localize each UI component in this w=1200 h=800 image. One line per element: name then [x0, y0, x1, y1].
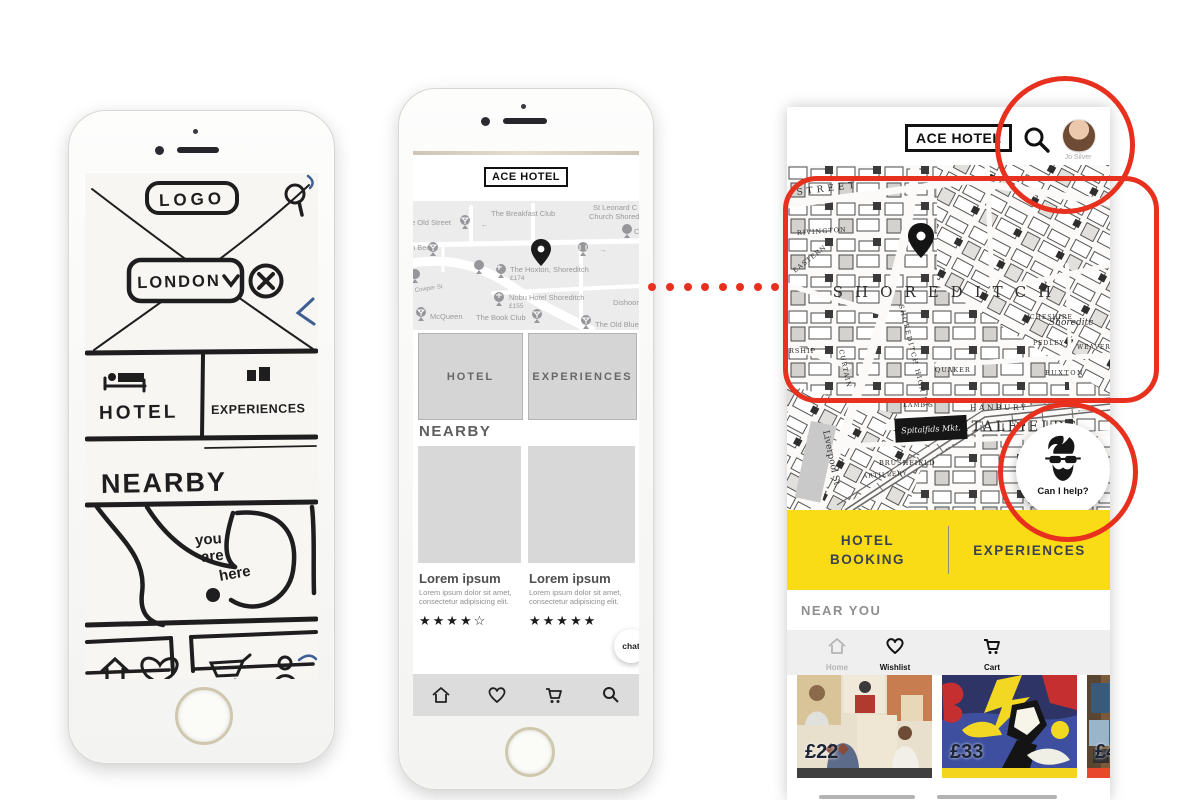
city-label: LONDON: [137, 272, 221, 292]
tab-hotel-line1: HOTEL: [841, 533, 894, 548]
divider: [87, 437, 316, 439]
nearby-heading: NEARBY: [101, 467, 228, 499]
wireframe-map[interactable]: e Old Street The Breakfast Club ← St Leo…: [413, 201, 639, 330]
card-title: Lorem ipsum: [529, 571, 611, 586]
wireframe-bottom-nav: [413, 674, 639, 716]
wireframe-header: ACE HOTEL: [413, 155, 639, 201]
proximity-sensor: [521, 104, 526, 109]
assistant-button-label: Can I help?: [1016, 486, 1110, 497]
hotel-tab[interactable]: HOTEL: [99, 373, 179, 424]
near-you-section: NEAR YOU: [787, 590, 1110, 630]
svg-text:The Breakfast Club: The Breakfast Club: [491, 209, 555, 218]
divider: [202, 355, 203, 438]
nav-item-wishlist[interactable]: Wishlist: [865, 635, 925, 672]
product-card[interactable]: £33: [942, 675, 1077, 778]
svg-text:BUXTON: BUXTON: [1045, 369, 1084, 377]
front-camera: [481, 117, 490, 126]
you-are-here-note: you are here: [195, 530, 252, 585]
divider: [87, 502, 316, 505]
svg-text:RSHIP: RSHIP: [789, 347, 816, 355]
hifi-header: ACE HOTEL Jo Silver: [787, 107, 1110, 166]
product-price: £4: [1095, 741, 1110, 764]
ace-hotel-logo: ACE HOTEL: [905, 124, 1012, 152]
nav-label: Cart: [962, 663, 1022, 672]
you-are-here-dot: [206, 588, 220, 602]
sketch-phone-device: LOGO LONDON: [68, 110, 335, 764]
svg-text:BRUSHFIELD: BRUSHFIELD: [879, 459, 936, 467]
svg-text:The Book Club: The Book Club: [476, 313, 526, 322]
nearby-heading: NEARBY: [419, 423, 491, 440]
hifi-mockup: ACE HOTEL Jo Silver: [787, 107, 1110, 800]
search-icon[interactable]: [1022, 125, 1052, 155]
nearby-card-image[interactable]: [528, 446, 635, 563]
booking-tabs: HOTEL BOOKING EXPERIENCES: [787, 510, 1110, 590]
clear-button[interactable]: [251, 266, 282, 297]
ace-hotel-logo: ACE HOTEL: [484, 167, 568, 187]
heart-icon[interactable]: [486, 684, 508, 706]
earpiece-speaker: [177, 147, 219, 153]
svg-text:e Old Street: e Old Street: [413, 218, 452, 227]
home-icon: [826, 635, 848, 657]
search-icon[interactable]: [286, 185, 304, 215]
tab-experiences-label: EXPERIENCES: [973, 541, 1086, 560]
svg-text:are: are: [200, 547, 224, 566]
nav-label: Home: [807, 663, 867, 672]
product-color-bar: [797, 768, 932, 778]
wireframe-screen: ACE HOTEL: [413, 151, 639, 716]
sketch-wireframe-drawing: LOGO LONDON: [85, 173, 318, 679]
card-description: Lorem ipsum dolor sit amet, consectetur …: [529, 588, 633, 606]
experiences-tab-label: EXPERIENCES: [211, 401, 306, 417]
earpiece-speaker: [503, 118, 547, 124]
svg-text:Nobu Hotel Shoreditch: Nobu Hotel Shoreditch: [509, 293, 584, 302]
nav-label: Wishlist: [865, 663, 925, 672]
assistant-button[interactable]: Can I help?: [1016, 423, 1110, 517]
market-label: Spitalfids Mkt.: [894, 415, 967, 443]
user-name: Jo Silver: [1048, 154, 1108, 161]
star-rating[interactable]: ★★★★☆: [419, 613, 487, 629]
profile-icon[interactable]: [275, 657, 295, 679]
svg-text:←: ←: [481, 220, 489, 229]
chat-button[interactable]: chat: [614, 629, 639, 663]
truncated-caption: [819, 795, 915, 799]
cart-icon: [980, 635, 1004, 657]
svg-text:you: you: [195, 530, 223, 549]
experiences-icon: [247, 367, 270, 381]
sketch-screen: LOGO LONDON: [85, 173, 318, 679]
svg-text:→: →: [599, 245, 607, 254]
search-icon[interactable]: [600, 684, 622, 706]
svg-text:Church Shoredit: Church Shoredit: [589, 212, 639, 221]
product-card[interactable]: £22: [797, 675, 932, 778]
proximity-sensor: [193, 129, 198, 134]
heart-icon: [884, 635, 906, 657]
bed-icon: [105, 373, 145, 391]
svg-text:St Leonard C o: St Leonard C o: [593, 203, 639, 212]
svg-text:LAMB S: LAMB S: [903, 402, 934, 409]
svg-text:£155: £155: [509, 303, 524, 310]
tab-hotel-line2: BOOKING: [830, 552, 905, 567]
nearby-card-image[interactable]: [418, 446, 521, 563]
divider: [87, 351, 316, 353]
svg-text:HANBURY: HANBURY: [970, 403, 1028, 412]
nav-item-cart[interactable]: Cart: [962, 635, 1022, 672]
wireframe-phone-device: ACE HOTEL: [398, 88, 654, 790]
hipster-face-icon: [1040, 435, 1086, 483]
home-button[interactable]: [175, 687, 233, 745]
hotel-tab-label: HOTEL: [99, 402, 179, 424]
logo-label: LOGO: [159, 189, 226, 210]
hotel-button-label: HOTEL: [447, 371, 494, 383]
experiences-tab[interactable]: EXPERIENCES: [211, 367, 306, 417]
svg-text:SHOREDITCH: SHOREDITCH: [833, 283, 1063, 301]
svg-text:Dishoom S: Dishoom S: [613, 298, 639, 307]
svg-text:Carg: Carg: [634, 227, 639, 236]
design-progression-canvas: LOGO LONDON: [0, 0, 1200, 800]
card-description: Lorem ipsum dolor sit amet, consectetur …: [419, 588, 521, 606]
svg-text:n Bee: n Bee: [413, 243, 431, 252]
truncated-caption: [937, 795, 1057, 799]
product-color-bar: [942, 768, 1077, 778]
experiences-button-label: EXPERIENCES: [532, 371, 632, 383]
svg-text:WEAVER: WEAVER: [1077, 344, 1110, 351]
product-color-bar: [1087, 768, 1110, 778]
tab-hotel-booking[interactable]: HOTEL BOOKING: [787, 510, 948, 590]
home-icon[interactable]: [430, 684, 452, 706]
tab-experiences[interactable]: EXPERIENCES: [949, 510, 1110, 590]
card-title: Lorem ipsum: [419, 571, 501, 586]
product-card[interactable]: £4: [1087, 675, 1110, 778]
svg-text:£174: £174: [510, 275, 525, 282]
svg-text:The Old Blue L: The Old Blue L: [595, 320, 639, 329]
svg-text:McQueen: McQueen: [430, 312, 463, 321]
nav-item-home[interactable]: Home: [807, 635, 867, 672]
experiences-button[interactable]: EXPERIENCES: [528, 333, 637, 420]
hifi-nav-bar: Home Wishlist Cart: [787, 630, 1110, 675]
city-dropdown[interactable]: LONDON: [129, 260, 242, 301]
svg-text:CHESHIRE: CHESHIRE: [1030, 314, 1073, 321]
near-you-heading: NEAR YOU: [801, 603, 881, 618]
chat-button-label: chat: [622, 641, 639, 651]
star-rating[interactable]: ★★★★★: [529, 613, 597, 629]
svg-text:PEDLEY: PEDLEY: [1033, 340, 1065, 347]
svg-text:QUAKER: QUAKER: [935, 366, 971, 374]
home-icon[interactable]: [102, 659, 128, 679]
divider: [205, 446, 316, 448]
hotel-button[interactable]: HOTEL: [418, 333, 523, 420]
front-camera: [155, 146, 164, 155]
cart-icon[interactable]: [542, 684, 566, 706]
avatar[interactable]: [1062, 119, 1096, 153]
product-price: £22: [805, 741, 838, 764]
svg-text:The Hoxton, Shoreditch: The Hoxton, Shoreditch: [510, 265, 589, 274]
home-button[interactable]: [505, 727, 555, 777]
product-price: £33: [950, 741, 983, 764]
